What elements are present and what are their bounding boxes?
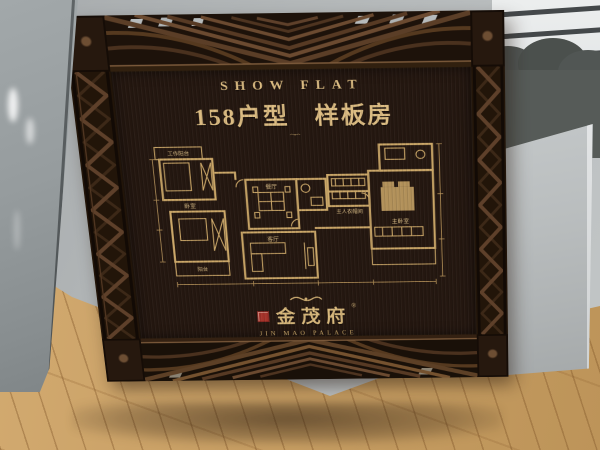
room-label-living: 客厅 [267,236,279,243]
carved-chevron-band-bottom [141,334,478,381]
glass-reflection [26,118,34,144]
floor-plan-drawing: 工作阳台 卧室 餐厅 客厅 主人衣帽间 主卧室 阳台 [147,138,447,289]
glass-reflection [8,88,18,122]
room-label-balcony: 阳台 [197,266,209,273]
room-label-closet: 主人衣帽间 [336,208,363,215]
floor-plan: 工作阳台 卧室 餐厅 客厅 主人衣帽间 主卧室 阳台 [147,138,447,293]
room-label-master: 主卧室 [392,218,410,225]
carved-chevron-band-top [104,10,471,71]
brand-seal-icon [257,311,270,322]
showroom-photo: SHOW FLAT 158户型 样板房 [0,0,600,450]
frame-corner-block [477,334,509,377]
room-label-dining: 餐厅 [265,183,277,190]
frame-corner-block [470,10,505,67]
title-english: SHOW FLAT [220,78,364,95]
brand-block: 金茂府 ® JIN MAO PALACE [256,292,358,337]
registered-mark: ® [351,302,356,309]
brand-name-chinese: 金茂府 [275,302,351,328]
bronze-plate: SHOW FLAT 158户型 样板房 [110,67,476,339]
window-railing-bar [492,5,600,18]
show-room-label: 样板房 [313,96,394,131]
room-label-bedroom: 卧室 [184,203,196,210]
glass-panel-right [494,124,596,376]
show-flat-sign-frame: SHOW FLAT 158户型 样板房 [62,10,508,382]
sign-shadow [72,402,502,444]
flourish-icon [273,133,318,136]
frame-corner-block [102,339,145,382]
glass-reflection [14,210,20,250]
carved-lattice-rail-right [471,66,508,334]
title-chinese: 158户型 样板房 [193,96,395,132]
unit-type-label: 158户型 [193,98,291,133]
room-label-work-balcony: 工作阳台 [167,150,190,158]
brand-name-english: JIN MAO PALACE [259,329,356,337]
